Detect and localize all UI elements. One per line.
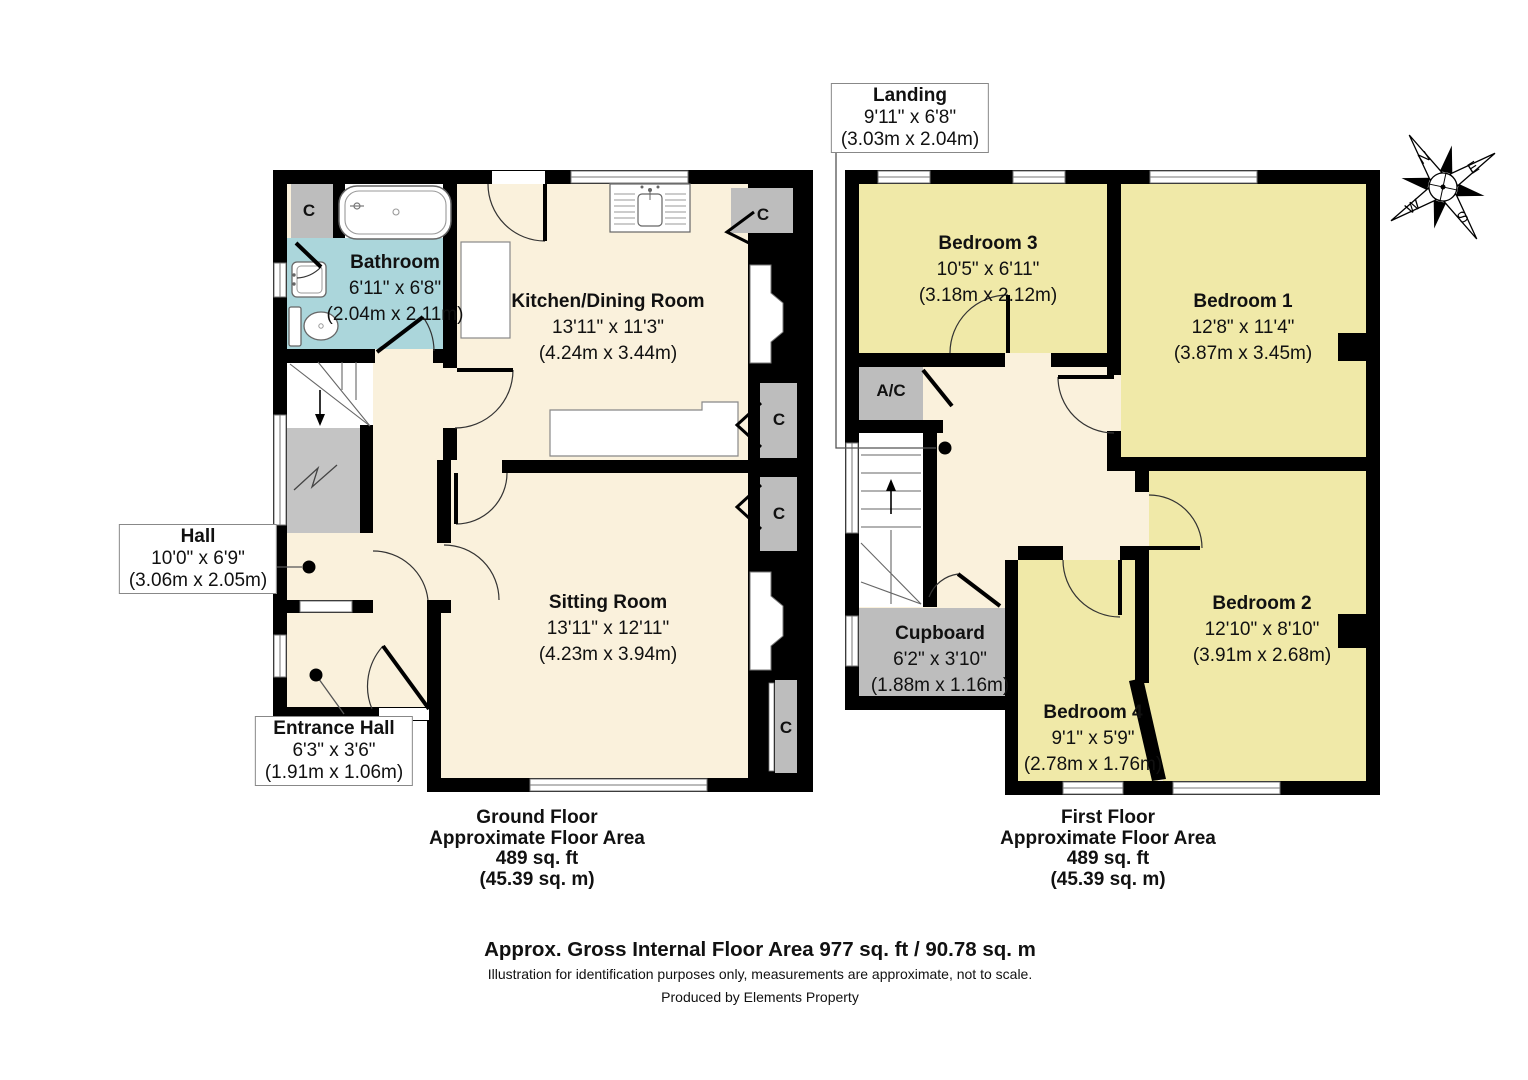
gross-area-text: Approx. Gross Internal Floor Area 977 sq… bbox=[484, 938, 1036, 962]
sitting-room-name: Sitting Room bbox=[539, 590, 677, 616]
entrance-hall-size-metric: (1.91m x 1.06m) bbox=[265, 762, 403, 784]
landing-label-box: Landing 9'11" x 6'8" (3.03m x 2.04m) bbox=[831, 83, 989, 153]
bedroom3-size-metric: (3.18m x 2.12m) bbox=[919, 283, 1057, 309]
first-notch-exterior bbox=[836, 710, 1005, 809]
landing-size-metric: (3.03m x 2.04m) bbox=[841, 129, 979, 151]
hall-name: Hall bbox=[129, 526, 267, 548]
ac-closet-label: A/C bbox=[876, 381, 905, 401]
bedroom2-name: Bedroom 2 bbox=[1193, 591, 1331, 617]
bedroom4-name: Bedroom 4 bbox=[1024, 700, 1162, 726]
kitchen-counter-left bbox=[461, 242, 510, 338]
ground-title-line4: (45.39 sq. m) bbox=[429, 870, 645, 891]
closet-c-label-bottomright: C bbox=[780, 718, 792, 738]
bedroom1-size-imperial: 12'8" x 11'4" bbox=[1174, 315, 1312, 341]
first-title-line4: (45.39 sq. m) bbox=[1000, 870, 1216, 891]
closet-c-label-topleft: C bbox=[303, 201, 315, 221]
kitchen-sink-unit bbox=[610, 184, 690, 232]
kitchen-dining-size-metric: (4.24m x 3.44m) bbox=[511, 341, 704, 367]
kitchen-dining-label: Kitchen/Dining Room 13'11" x 11'3" (4.24… bbox=[511, 289, 704, 367]
sitting-room-label: Sitting Room 13'11" x 12'11" (4.23m x 3.… bbox=[539, 590, 677, 668]
ground-title-line1: Ground Floor bbox=[429, 808, 645, 829]
landing-name: Landing bbox=[841, 85, 979, 107]
bedroom1-name: Bedroom 1 bbox=[1174, 289, 1312, 315]
kitchen-dining-name: Kitchen/Dining Room bbox=[511, 289, 704, 315]
entrance-hall-label-box: Entrance Hall 6'3" x 3'6" (1.91m x 1.06m… bbox=[255, 716, 413, 786]
bedroom1-size-metric: (3.87m x 3.45m) bbox=[1174, 341, 1312, 367]
bathtub bbox=[339, 186, 451, 239]
disclaimer-text: Illustration for identification purposes… bbox=[488, 966, 1032, 982]
credit-text: Produced by Elements Property bbox=[661, 989, 859, 1005]
hall-size-metric: (3.06m x 2.05m) bbox=[129, 570, 267, 592]
cupboard-size-imperial: 6'2" x 3'10" bbox=[871, 647, 1009, 673]
sitting-room-size-imperial: 13'11" x 12'11" bbox=[539, 616, 677, 642]
bedroom3-name: Bedroom 3 bbox=[919, 231, 1057, 257]
closet-c-label-right-lower: C bbox=[773, 504, 785, 524]
bathroom-label: Bathroom 6'11" x 6'8" (2.04m x 2.11m) bbox=[327, 250, 464, 328]
closet-c-label-topright: C bbox=[757, 205, 769, 225]
landing-size-imperial: 9'11" x 6'8" bbox=[841, 107, 979, 129]
first-title-line1: First Floor bbox=[1000, 808, 1216, 829]
first-floor-title: First Floor Approximate Floor Area 489 s… bbox=[1000, 808, 1216, 890]
first-title-line2: Approximate Floor Area bbox=[1000, 829, 1216, 850]
sitting-room-size-metric: (4.23m x 3.94m) bbox=[539, 642, 677, 668]
ground-floor-title: Ground Floor Approximate Floor Area 489 … bbox=[429, 808, 645, 890]
bedroom3-label: Bedroom 3 10'5" x 6'11" (3.18m x 2.12m) bbox=[919, 231, 1057, 309]
bedroom4-size-metric: (2.78m x 1.76m) bbox=[1024, 752, 1162, 778]
bathroom-size-metric: (2.04m x 2.11m) bbox=[327, 302, 464, 328]
bedroom3-size-imperial: 10'5" x 6'11" bbox=[919, 257, 1057, 283]
entrance-hall-size-imperial: 6'3" x 3'6" bbox=[265, 740, 403, 762]
bathroom-size-imperial: 6'11" x 6'8" bbox=[327, 276, 464, 302]
closet-c-label-right-upper: C bbox=[773, 410, 785, 430]
bedroom1-label: Bedroom 1 12'8" x 11'4" (3.87m x 3.45m) bbox=[1174, 289, 1312, 367]
stair-landing-block bbox=[287, 428, 360, 533]
entrance-hall-name: Entrance Hall bbox=[265, 718, 403, 740]
hall-size-imperial: 10'0" x 6'9" bbox=[129, 548, 267, 570]
kitchen-worktop bbox=[550, 402, 738, 456]
bedroom2-label: Bedroom 2 12'10" x 8'10" (3.91m x 2.68m) bbox=[1193, 591, 1331, 669]
ground-title-line2: Approximate Floor Area bbox=[429, 829, 645, 850]
bedroom2-size-metric: (3.91m x 2.68m) bbox=[1193, 643, 1331, 669]
cupboard-label: Cupboard 6'2" x 3'10" (1.88m x 1.16m) bbox=[871, 621, 1009, 699]
bedroom4-size-imperial: 9'1" x 5'9" bbox=[1024, 726, 1162, 752]
first-title-line3: 489 sq. ft bbox=[1000, 849, 1216, 870]
bedroom4-label: Bedroom 4 9'1" x 5'9" (2.78m x 1.76m) bbox=[1024, 700, 1162, 778]
hall-label-box: Hall 10'0" x 6'9" (3.06m x 2.05m) bbox=[119, 524, 277, 594]
bedroom2-size-imperial: 12'10" x 8'10" bbox=[1193, 617, 1331, 643]
cupboard-size-metric: (1.88m x 1.16m) bbox=[871, 673, 1009, 699]
kitchen-dining-size-imperial: 13'11" x 11'3" bbox=[511, 315, 704, 341]
floorplan-page: N E S W Bathroom 6'11" x 6'8" (2.04m x 2… bbox=[0, 0, 1528, 1080]
bathroom-name: Bathroom bbox=[327, 250, 464, 276]
ground-title-line3: 489 sq. ft bbox=[429, 849, 645, 870]
cupboard-name: Cupboard bbox=[871, 621, 1009, 647]
compass-rose: N E S W bbox=[1357, 101, 1528, 273]
